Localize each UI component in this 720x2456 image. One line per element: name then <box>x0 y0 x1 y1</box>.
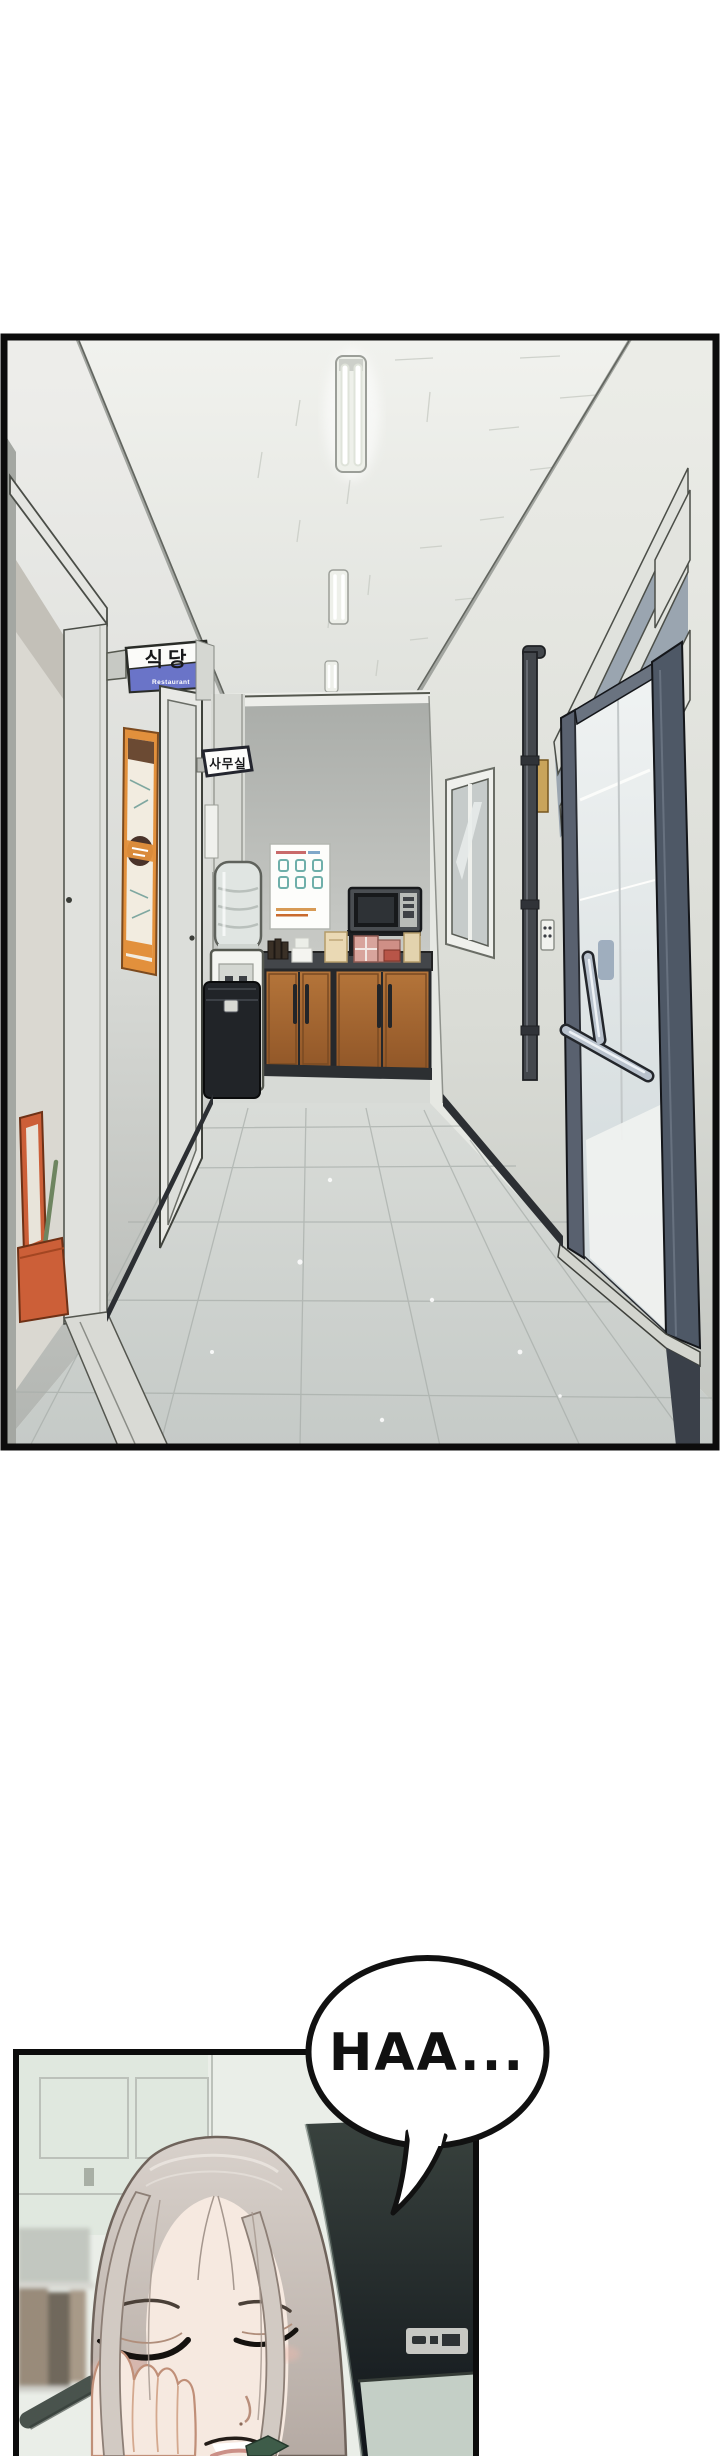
sign-bracket <box>107 650 126 680</box>
trash-bin <box>204 982 260 1098</box>
light-switch <box>541 920 554 950</box>
fluorescent-light-large <box>336 356 366 472</box>
restaurant-sign-subtext: Restaurant <box>152 679 190 686</box>
hallway-panel: 식당 Restaurant <box>2 338 718 1446</box>
wall-notice <box>205 805 218 858</box>
speech-bubble-seam-patch <box>407 2126 446 2146</box>
office-door-handle <box>189 935 194 940</box>
office-sign-text: 사무실 <box>209 756 247 771</box>
safety-poster <box>122 728 158 975</box>
fluorescent-light-medium <box>329 570 348 624</box>
restaurant-sign-text: 식당 <box>145 647 192 671</box>
kitchen-cabinets <box>263 952 432 1080</box>
interior-window <box>446 768 494 958</box>
instruction-poster <box>270 844 330 929</box>
fluorescent-light-small <box>325 661 338 692</box>
door-knob <box>66 897 72 903</box>
webtoon-page: 식당 Restaurant <box>0 0 720 2456</box>
desk <box>358 2372 474 2456</box>
bin-clasp <box>224 1000 238 1012</box>
speech-bubble-text: HAA... <box>329 2023 525 2083</box>
